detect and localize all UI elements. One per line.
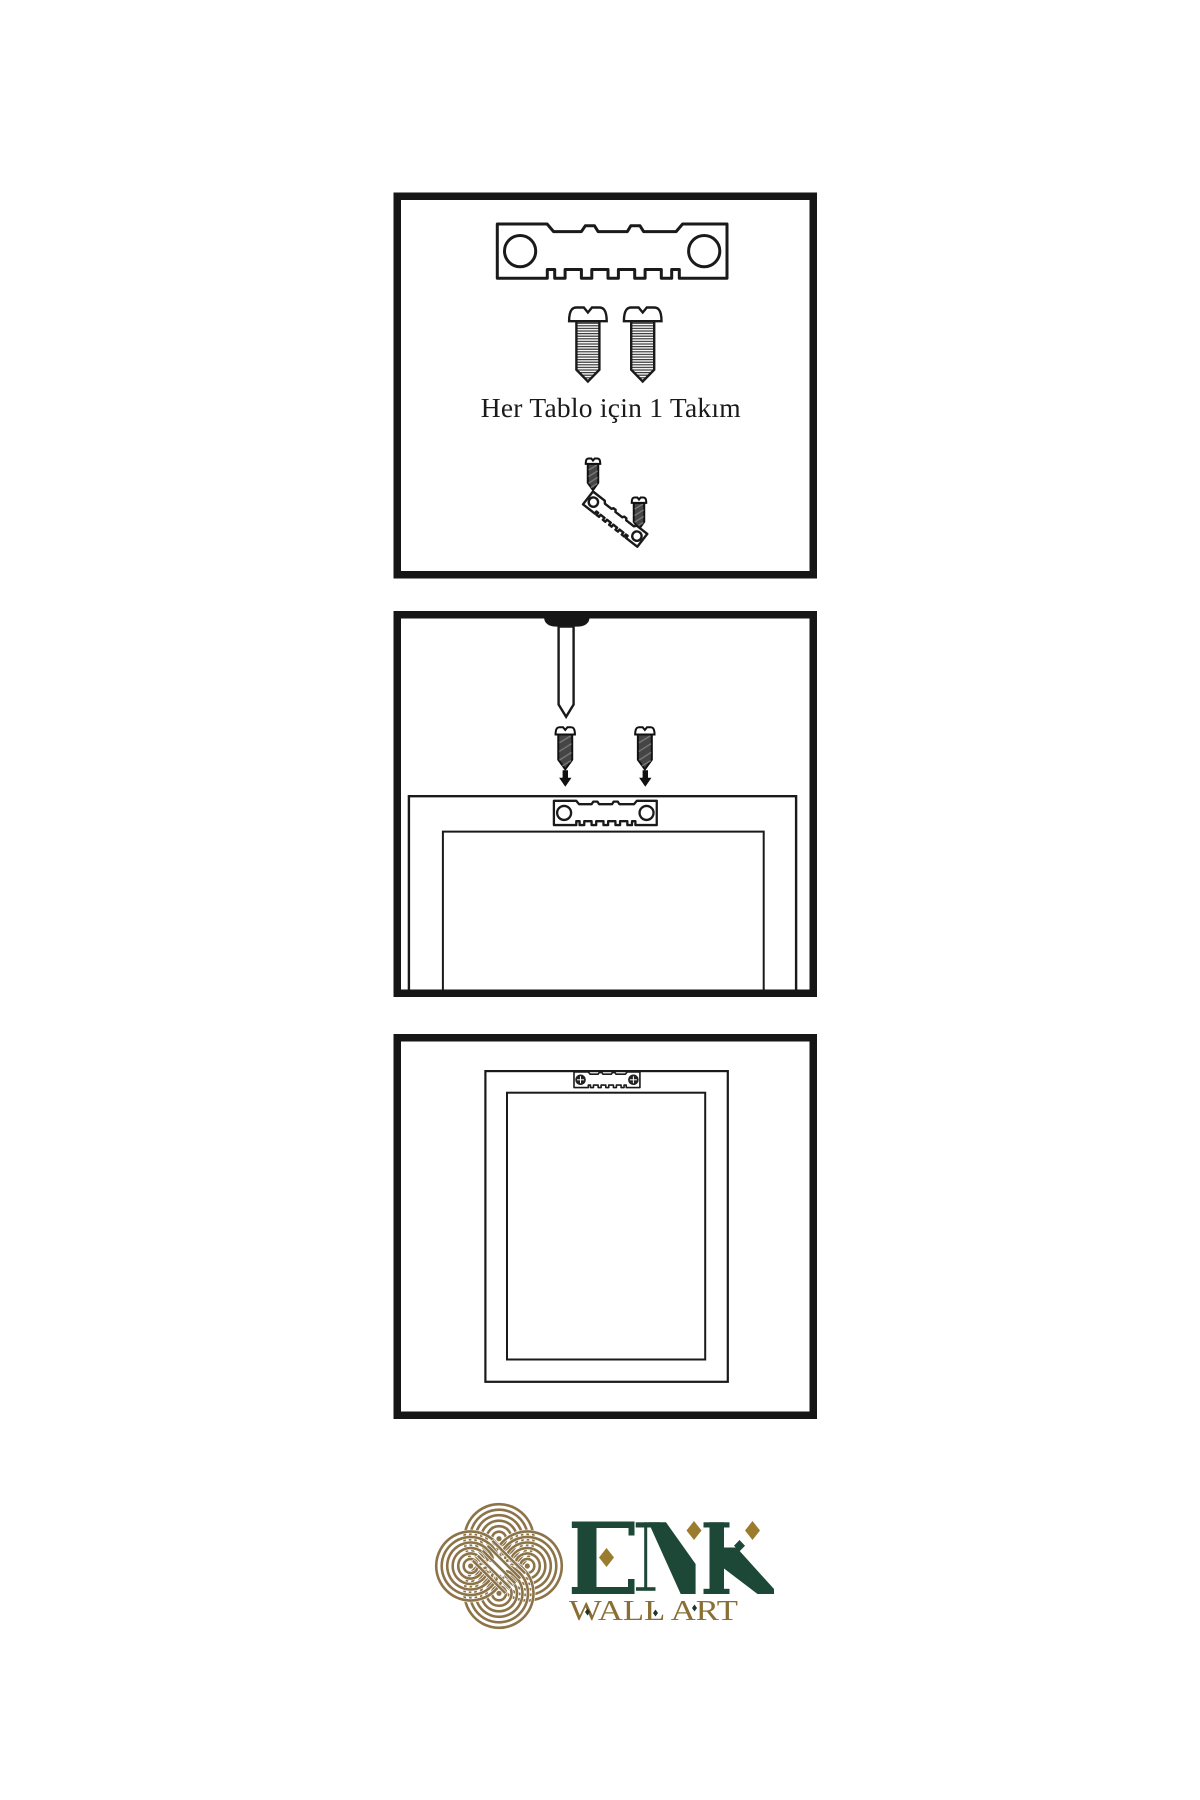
svg-text:WALL ART: WALL ART bbox=[569, 1596, 738, 1627]
svg-text:Her Tablo için 1 Takım: Her Tablo için 1 Takım bbox=[481, 392, 741, 423]
